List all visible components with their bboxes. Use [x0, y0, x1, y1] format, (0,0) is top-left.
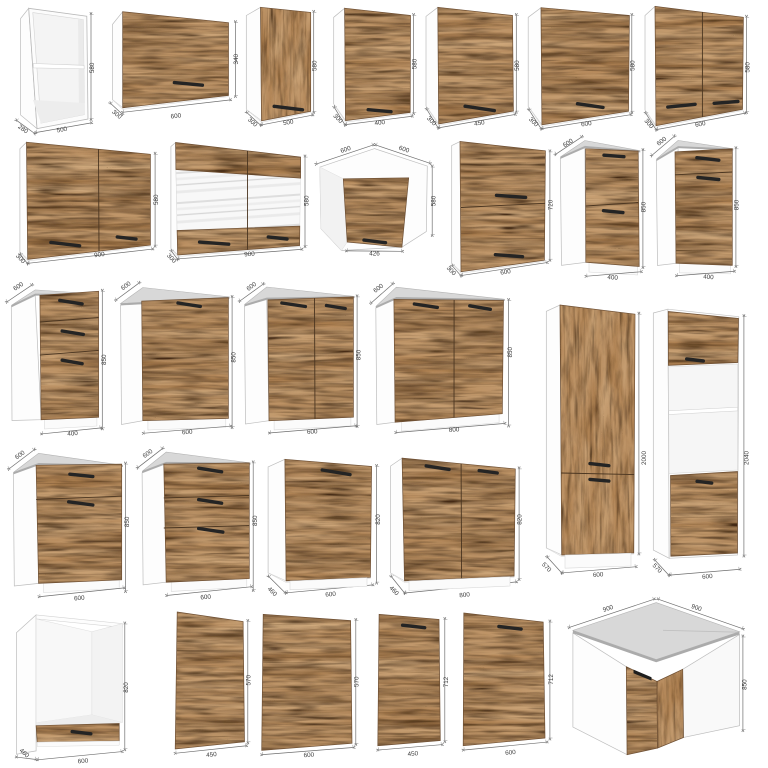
svg-text:580: 580 [630, 60, 637, 71]
svg-text:580: 580 [431, 195, 438, 206]
svg-text:580: 580 [411, 58, 418, 69]
svg-text:400: 400 [67, 430, 79, 438]
svg-text:600: 600 [77, 757, 89, 765]
svg-text:600: 600 [325, 591, 337, 599]
svg-text:850: 850 [734, 199, 741, 210]
svg-text:900: 900 [94, 251, 106, 259]
svg-text:400: 400 [374, 119, 386, 127]
svg-text:600: 600 [505, 749, 517, 757]
svg-text:712: 712 [443, 676, 450, 687]
svg-text:600: 600 [303, 751, 315, 759]
svg-text:900: 900 [244, 251, 256, 259]
svg-text:2040: 2040 [744, 451, 751, 466]
svg-text:850: 850 [356, 349, 363, 360]
svg-text:850: 850 [252, 515, 259, 526]
svg-text:600: 600 [170, 112, 182, 120]
svg-text:2000: 2000 [641, 451, 648, 466]
svg-text:580: 580 [744, 62, 751, 73]
svg-text:800: 800 [459, 591, 471, 599]
svg-text:850: 850 [640, 201, 647, 212]
svg-text:800: 800 [449, 426, 461, 434]
svg-text:450: 450 [206, 751, 218, 759]
svg-text:820: 820 [123, 682, 130, 693]
svg-text:600: 600 [74, 594, 86, 602]
svg-text:600: 600 [702, 573, 714, 581]
svg-text:850: 850 [124, 516, 131, 527]
svg-text:600: 600 [182, 429, 194, 437]
svg-text:850: 850 [507, 347, 514, 358]
svg-text:400: 400 [703, 274, 714, 282]
svg-text:450: 450 [407, 750, 419, 758]
svg-text:580: 580 [303, 195, 310, 206]
svg-text:820: 820 [517, 514, 524, 525]
svg-text:580: 580 [514, 60, 521, 71]
svg-text:600: 600 [593, 571, 605, 579]
svg-text:600: 600 [200, 593, 212, 601]
svg-text:850: 850 [101, 354, 108, 365]
svg-text:850: 850 [742, 679, 749, 690]
svg-text:600: 600 [307, 428, 319, 436]
svg-text:400: 400 [607, 274, 619, 282]
svg-text:580: 580 [312, 60, 319, 71]
svg-text:850: 850 [231, 352, 238, 363]
svg-text:580: 580 [89, 62, 96, 73]
svg-text:580: 580 [153, 194, 160, 205]
svg-text:340: 340 [233, 53, 240, 64]
svg-text:712: 712 [548, 674, 555, 685]
svg-text:570: 570 [246, 674, 253, 685]
svg-text:570: 570 [354, 676, 361, 687]
svg-text:426: 426 [369, 250, 380, 257]
svg-text:720: 720 [547, 199, 554, 210]
svg-text:820: 820 [375, 514, 382, 525]
